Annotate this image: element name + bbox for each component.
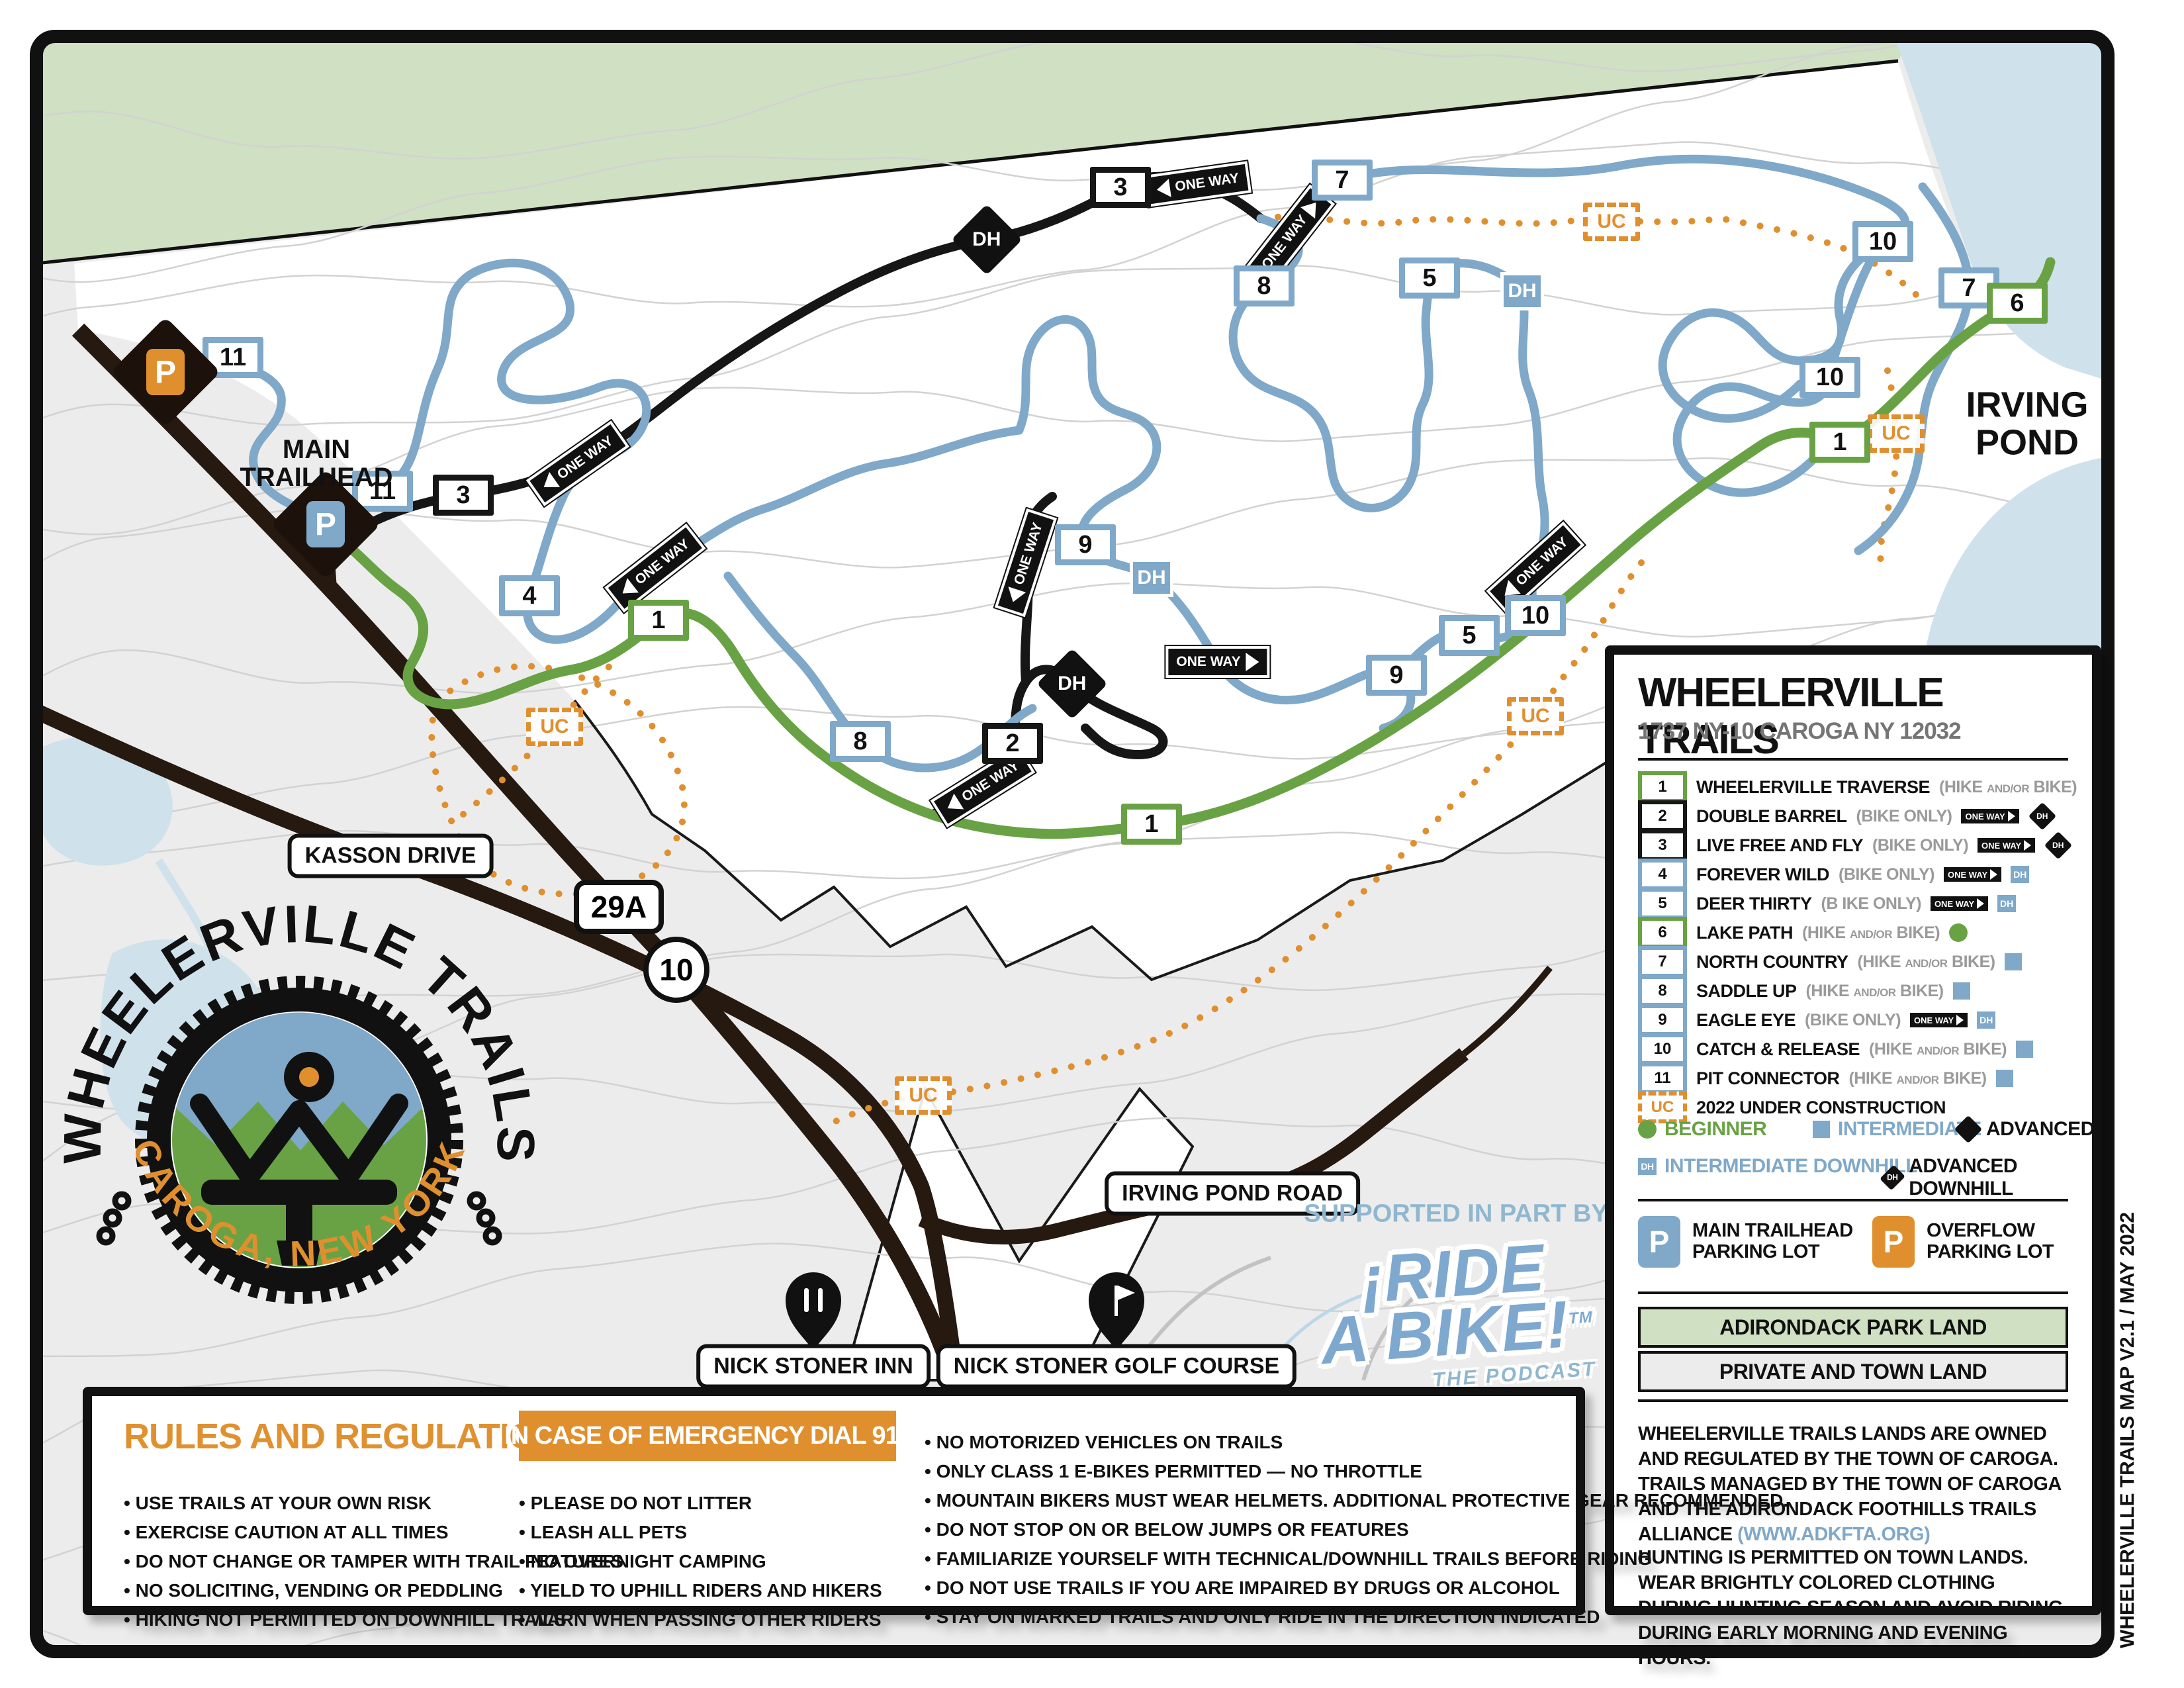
advanced-downhill-marker: DH <box>1036 648 1107 719</box>
intermediate-square-icon <box>1953 982 1970 1000</box>
difficulty-intermediate-downhill: DHINTERMEDIATE DOWNHILL <box>1638 1155 1917 1178</box>
divider <box>1638 1399 2068 1402</box>
one-way-arrow-icon <box>1004 586 1026 605</box>
trail-mode: (BIKE ONLY) <box>1872 836 1968 855</box>
trail-mode: (HIKE AND/OR BIKE) <box>1939 778 2077 797</box>
route-29a-shield: 29A <box>574 880 664 934</box>
bullet-item: YIELD TO UPHILL RIDERS AND HIKERS <box>519 1576 882 1605</box>
intermediate-square-icon <box>1996 1070 2013 1087</box>
one-way-arrow-icon <box>617 578 639 600</box>
difficulty-advanced-downhill: DHADVANCED DOWNHILL <box>1884 1155 2092 1200</box>
bullet-item: PLEASE DO NOT LITTER <box>519 1489 882 1518</box>
trail-row-5: 5DEER THIRTY(B IKE ONLY)ONE WAYDH <box>1638 889 2068 918</box>
parking-orange-icon: P <box>1872 1216 1915 1268</box>
bullet-item: NO OVERNIGHT CAMPING <box>519 1547 882 1576</box>
trail-name: NORTH COUNTRY <box>1696 952 1848 972</box>
trail-row-7: 7NORTH COUNTRY(HIKE AND/OR BIKE) <box>1638 947 2068 976</box>
intermediate-downhill-icon: DH <box>2011 866 2029 883</box>
trail-row-badge: 4 <box>1638 859 1687 890</box>
rules-panel: RULES AND REGULATIONS USE TRAILS AT YOUR… <box>83 1387 1585 1615</box>
trail-list: 1WHEELERVILLE TRAVERSE(HIKE AND/OR BIKE)… <box>1638 773 2068 1122</box>
intermediate-downhill-marker: DH <box>1130 559 1173 597</box>
bullet-item: STAY ON MARKED TRAILS AND ONLY RIDE IN T… <box>925 1603 1788 1632</box>
beginner-dot-icon <box>1949 923 1968 942</box>
advanced-downhill-marker: DH <box>951 204 1022 275</box>
trail-name: 2022 UNDER CONSTRUCTION <box>1696 1098 1946 1118</box>
trail-row-badge: 11 <box>1638 1062 1687 1094</box>
etiquette-list: NO MOTORIZED VEHICLES ON TRAILSONLY CLAS… <box>925 1428 1788 1632</box>
trail-marker-5: 5 <box>1399 258 1460 299</box>
trail-name: PIT CONNECTOR <box>1696 1068 1840 1089</box>
one-way-icon: ONE WAY <box>1931 896 1988 911</box>
trail-marker-1: 1 <box>1121 804 1182 845</box>
emergency-list: PLEASE DO NOT LITTERLEASH ALL PETSNO OVE… <box>519 1489 882 1634</box>
intermediate-square-icon <box>1813 1121 1830 1138</box>
under-construction-marker: UC <box>526 708 583 746</box>
one-way-arrow-icon <box>1246 653 1259 671</box>
trail-mode: (BIKE ONLY) <box>1805 1011 1901 1030</box>
trail-name: FOREVER WILD <box>1696 865 1829 885</box>
difficulty-beginner: BEGINNER <box>1638 1118 1766 1141</box>
trail-row-4: 4FOREVER WILD(BIKE ONLY)ONE WAYDH <box>1638 860 2068 889</box>
nick-stoner-inn-pill: NICK STONER INN <box>696 1344 931 1389</box>
bullet-item: DO NOT USE TRAILS IF YOU ARE IMPAIRED BY… <box>925 1573 1788 1603</box>
trail-row-badge: 6 <box>1638 917 1687 949</box>
under-construction-marker: UC <box>895 1076 952 1115</box>
kasson-drive-pill: KASSON DRIVE <box>288 834 494 878</box>
trail-name: DOUBLE BARREL <box>1696 806 1847 827</box>
advanced-downhill-icon: DH <box>2044 831 2072 859</box>
trail-mode: (HIKE AND/OR BIKE) <box>1858 953 1995 972</box>
trail-marker-5: 5 <box>1439 615 1500 656</box>
trail-name: SADDLE UP <box>1696 981 1797 1002</box>
advanced-downhill-icon: DH <box>2028 802 2056 830</box>
land-private: PRIVATE AND TOWN LAND <box>1638 1351 2068 1392</box>
intermediate-square-icon <box>2016 1041 2033 1058</box>
trail-name: CATCH & RELEASE <box>1696 1039 1860 1060</box>
bullet-item: FAMILIARIZE YOURSELF WITH TECHNICAL/DOWN… <box>925 1544 1788 1573</box>
bullet-item: MOUNTAIN BIKERS MUST WEAR HELMETS. ADDIT… <box>925 1486 1788 1515</box>
trail-row-9: 9EAGLE EYE(BIKE ONLY)ONE WAYDH <box>1638 1006 2068 1035</box>
trail-row-11: 11PIT CONNECTOR(HIKE AND/OR BIKE) <box>1638 1064 2068 1093</box>
under-construction-marker: UC <box>1507 697 1564 735</box>
divider <box>1638 1199 2068 1201</box>
trail-name: DEER THIRTY <box>1696 894 1812 914</box>
bullet-item: ONLY CLASS 1 E-BIKES PERMITTED — NO THRO… <box>925 1457 1788 1486</box>
irving-pond-label: IRVINGPOND <box>1966 386 2088 461</box>
trail-row-10: 10CATCH & RELEASE(HIKE AND/OR BIKE) <box>1638 1035 2068 1064</box>
bullet-item: WARN WHEN PASSING OTHER RIDERS <box>519 1605 882 1634</box>
trail-marker-1: 1 <box>628 600 689 641</box>
parking-overflow: P OVERFLOWPARKING LOT <box>1872 1216 2054 1268</box>
intermediate-downhill-icon: DH <box>1997 895 2016 912</box>
under-construction-marker: UC <box>1583 203 1640 241</box>
bullet-item: DO NOT STOP ON OR BELOW JUMPS OR FEATURE… <box>925 1515 1788 1544</box>
one-way-arrow-icon <box>1156 179 1171 199</box>
divider <box>1638 758 2068 761</box>
one-way-arrow-icon <box>942 794 964 816</box>
trail-marker-2: 2 <box>982 723 1043 764</box>
trail-marker-10: 10 <box>1852 221 1913 262</box>
trail-name: EAGLE EYE <box>1696 1010 1796 1031</box>
divider <box>1638 1291 2068 1294</box>
trail-row-badge: 10 <box>1638 1033 1687 1065</box>
one-way-icon: ONE WAY <box>1978 838 2035 853</box>
trail-marker-8: 8 <box>830 721 891 762</box>
trail-marker-7: 7 <box>1312 160 1373 201</box>
one-way-arrow-icon <box>539 472 560 494</box>
intermediate-square-icon <box>2005 953 2022 970</box>
trail-row-badge: 9 <box>1638 1004 1687 1036</box>
trail-row-1: 1WHEELERVILLE TRAVERSE(HIKE AND/OR BIKE) <box>1638 773 2068 802</box>
trail-row-8: 8SADDLE UP(HIKE AND/OR BIKE) <box>1638 976 2068 1006</box>
emergency-title: IN CASE OF EMERGENCY DIAL 911 <box>519 1411 896 1461</box>
trail-name: WHEELERVILLE TRAVERSE <box>1696 777 1930 798</box>
one-way-sign: ONE WAY <box>995 508 1057 617</box>
trail-marker-10: 10 <box>1505 595 1566 636</box>
one-way-icon: ONE WAY <box>1961 809 2019 823</box>
trail-marker-3: 3 <box>433 475 494 516</box>
trail-marker-1: 1 <box>1809 422 1870 463</box>
trail-row-6: 6LAKE PATH(HIKE AND/OR BIKE) <box>1638 918 2068 947</box>
bullet-item: NO MOTORIZED VEHICLES ON TRAILS <box>925 1428 1788 1457</box>
ride-a-bike-logo: ¡RIDE A BIKE!TM THE PODCAST <box>1315 1235 1598 1399</box>
dh-blue-icon: DH <box>1638 1158 1657 1175</box>
trail-row-3: 3LIVE FREE AND FLY(BIKE ONLY)ONE WAYDH <box>1638 831 2068 860</box>
nick-stoner-golf-pill: NICK STONER GOLF COURSE <box>936 1344 1297 1389</box>
one-way-icon: ONE WAY <box>1910 1013 1968 1027</box>
beginner-dot-icon <box>1638 1120 1657 1139</box>
trail-row-badge: 1 <box>1638 771 1687 803</box>
trail-mode: (HIKE AND/OR BIKE) <box>1806 982 1944 1001</box>
map-version-caption: WHEELERVILLE TRAILS MAP V2.1 / MAY 2022 <box>2116 1314 2139 1648</box>
trail-marker-3: 3 <box>1090 167 1151 208</box>
parking-blue-icon: P <box>1638 1216 1680 1268</box>
trail-row-badge: 7 <box>1638 946 1687 978</box>
trail-mode: (HIKE AND/OR BIKE) <box>1869 1040 2007 1059</box>
trail-mode: (HIKE AND/OR BIKE) <box>1849 1069 1987 1088</box>
legend-title: WHEELERVILLE TRAILS <box>1638 669 2068 763</box>
trail-name: LAKE PATH <box>1696 923 1793 943</box>
trail-marker-6: 6 <box>1987 283 2048 324</box>
one-way-sign: ONE WAY <box>1165 646 1269 678</box>
trail-mode: (BIKE ONLY) <box>1839 865 1934 884</box>
trail-marker-8: 8 <box>1234 265 1295 306</box>
trail-mode: (BIKE ONLY) <box>1856 807 1952 826</box>
trail-row-badge: 2 <box>1638 800 1687 832</box>
advanced-diamond-icon <box>1954 1115 1982 1143</box>
legend-address: 1737 NY-10 CAROGA NY 12032 <box>1638 718 2068 745</box>
trail-map-poster: WHEELERVILLE TRAILS CAROGA, NEW YORK ONE… <box>0 0 2184 1688</box>
trail-marker-10: 10 <box>1799 357 1860 398</box>
trail-row-badge: 3 <box>1638 829 1687 861</box>
difficulty-advanced: ADVANCED <box>1958 1118 2095 1141</box>
one-way-sign: ONE WAY <box>1144 161 1251 207</box>
trademark: TM <box>1568 1308 1593 1327</box>
route-10-shield: 10 <box>643 937 709 1003</box>
trail-marker-9: 9 <box>1366 655 1427 696</box>
one-way-icon: ONE WAY <box>1944 867 2001 882</box>
trail-row-2: 2DOUBLE BARREL(BIKE ONLY)ONE WAYDH <box>1638 802 2068 831</box>
trail-row-badge: 5 <box>1638 888 1687 919</box>
trail-row-badge: 8 <box>1638 975 1687 1007</box>
intermediate-downhill-icon: DH <box>1977 1011 1995 1029</box>
intermediate-downhill-marker: DH <box>1500 272 1544 310</box>
main-trailhead-label: MAINTRAILHEAD <box>240 436 392 491</box>
trail-marker-9: 9 <box>1055 524 1116 565</box>
trail-marker-4: 4 <box>499 575 560 616</box>
bullet-item: LEASH ALL PETS <box>519 1518 882 1547</box>
trail-name: LIVE FREE AND FLY <box>1696 835 1863 856</box>
trail-mode: (HIKE AND/OR BIKE) <box>1802 923 1940 943</box>
trail-mode: (B IKE ONLY) <box>1821 894 1921 914</box>
supported-by-label: SUPPORTED IN PART BY <box>1304 1200 1608 1229</box>
under-construction-marker: UC <box>1868 414 1925 453</box>
land-adirondack: ADIRONDACK PARK LAND <box>1638 1307 2068 1348</box>
parking-main-trailhead: P MAIN TRAILHEADPARKING LOT <box>1638 1216 1853 1268</box>
parking-marker-orange: P <box>111 317 221 428</box>
one-way-sign: ONE WAY <box>526 420 629 506</box>
